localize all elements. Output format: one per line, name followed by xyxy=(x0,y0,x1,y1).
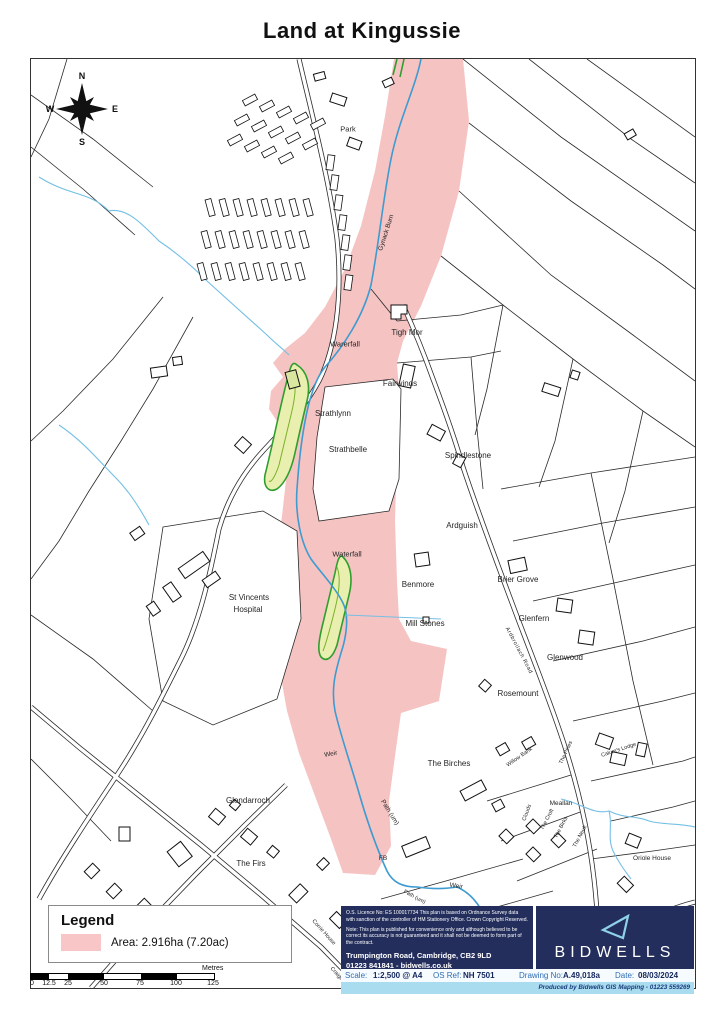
legend-title: Legend xyxy=(61,912,281,929)
page-title: Land at Kingussie xyxy=(0,18,724,44)
bidwells-wordmark: BIDWELLS xyxy=(555,944,676,962)
scale-bar: Metres 0 12.5 25 50 75 100 125 xyxy=(30,966,250,988)
compass-w: W xyxy=(46,104,55,114)
map-sheet: Land at Kingussie xyxy=(0,0,724,1024)
map-label-oriole-house: Oriole House xyxy=(633,856,671,863)
scale-bar-segments xyxy=(30,973,215,980)
map-label-warerfall: Warerfall xyxy=(330,340,360,348)
map-label-strathbelle: Strathbelle xyxy=(329,446,367,454)
map-label-spindlestone: Spindlestone xyxy=(445,452,491,460)
map-label-rosemount: Rosemount xyxy=(498,690,539,698)
legend-box: Legend Area: 2.916ha (7.20ac) xyxy=(48,905,292,963)
map-label-benmore: Benmore xyxy=(402,581,434,589)
map-label-park: Park xyxy=(340,125,355,133)
scale-label: Scale: xyxy=(345,971,367,980)
scale-value: 1:2,500 @ A4 xyxy=(373,971,422,980)
map-label-fb: FB xyxy=(379,856,387,863)
date-label: Date: xyxy=(615,971,634,980)
map-label-the-firs: The Firs xyxy=(236,860,265,868)
map-label-ardguish: Ardguish xyxy=(446,522,478,530)
produced-by-strip: Produced by Bidwells GIS Mapping - 01223… xyxy=(341,982,694,994)
bidwells-triangle-icon xyxy=(598,914,632,941)
map-label-strathlynn: Strathlynn xyxy=(315,410,351,418)
legend-area-swatch xyxy=(61,934,101,951)
map-label-brier-grove: Brier Grove xyxy=(498,576,539,584)
os-ref-value: NH 7501 xyxy=(463,971,495,980)
drawing-label: Drawing No: xyxy=(519,971,563,980)
os-licence-box: O.S. Licence No: ES 100017734 This plan … xyxy=(341,906,533,969)
map-label-glenfern: Glenfern xyxy=(519,615,550,623)
bidwells-logo-box: BIDWELLS xyxy=(536,906,694,969)
map-label-the-birches: The Birches xyxy=(428,760,471,768)
os-licence-text: O.S. Licence No: ES 100017734 This plan … xyxy=(346,910,528,924)
address-line: Trumpington Road, Cambridge, CB2 9LD xyxy=(346,951,528,961)
map-frame: N E S W Park Gynack Burn Warerfall Tigh … xyxy=(30,58,696,989)
disclaimer-text: Note: This plan is published for conveni… xyxy=(346,927,528,947)
map-footer-bar: Scale: 1:2,500 @ A4 OS Ref: NH 7501 Draw… xyxy=(341,969,694,982)
map-label-fairwinds: Fairwinds xyxy=(383,380,417,388)
map-label-mill-stones: Mill Stones xyxy=(405,620,444,628)
os-ref-label: OS Ref: xyxy=(433,971,461,980)
map-label-hospital: Hospital xyxy=(234,606,263,614)
date-value: 08/03/2024 xyxy=(638,971,678,980)
map-label-tigh-mor: Tigh Mor xyxy=(391,329,422,337)
map-label-meallan: Meallan xyxy=(550,801,573,808)
scale-unit: Metres xyxy=(202,965,223,972)
compass-rose: N E S W xyxy=(46,71,118,147)
map-label-st-vincents: St Vincents xyxy=(229,594,269,602)
map-label-glendarroch: Glendarroch xyxy=(226,797,270,805)
map-label-waterfall: Waterfall xyxy=(332,550,361,558)
map-artwork: N E S W xyxy=(31,59,695,988)
compass-n: N xyxy=(79,71,86,81)
legend-area-label: Area: 2.916ha (7.20ac) xyxy=(111,937,229,949)
drawing-value: A.49,018a xyxy=(563,971,600,980)
map-label-glenwood: Glenwood xyxy=(547,654,583,662)
compass-e: E xyxy=(112,104,118,114)
compass-s: S xyxy=(79,137,85,147)
